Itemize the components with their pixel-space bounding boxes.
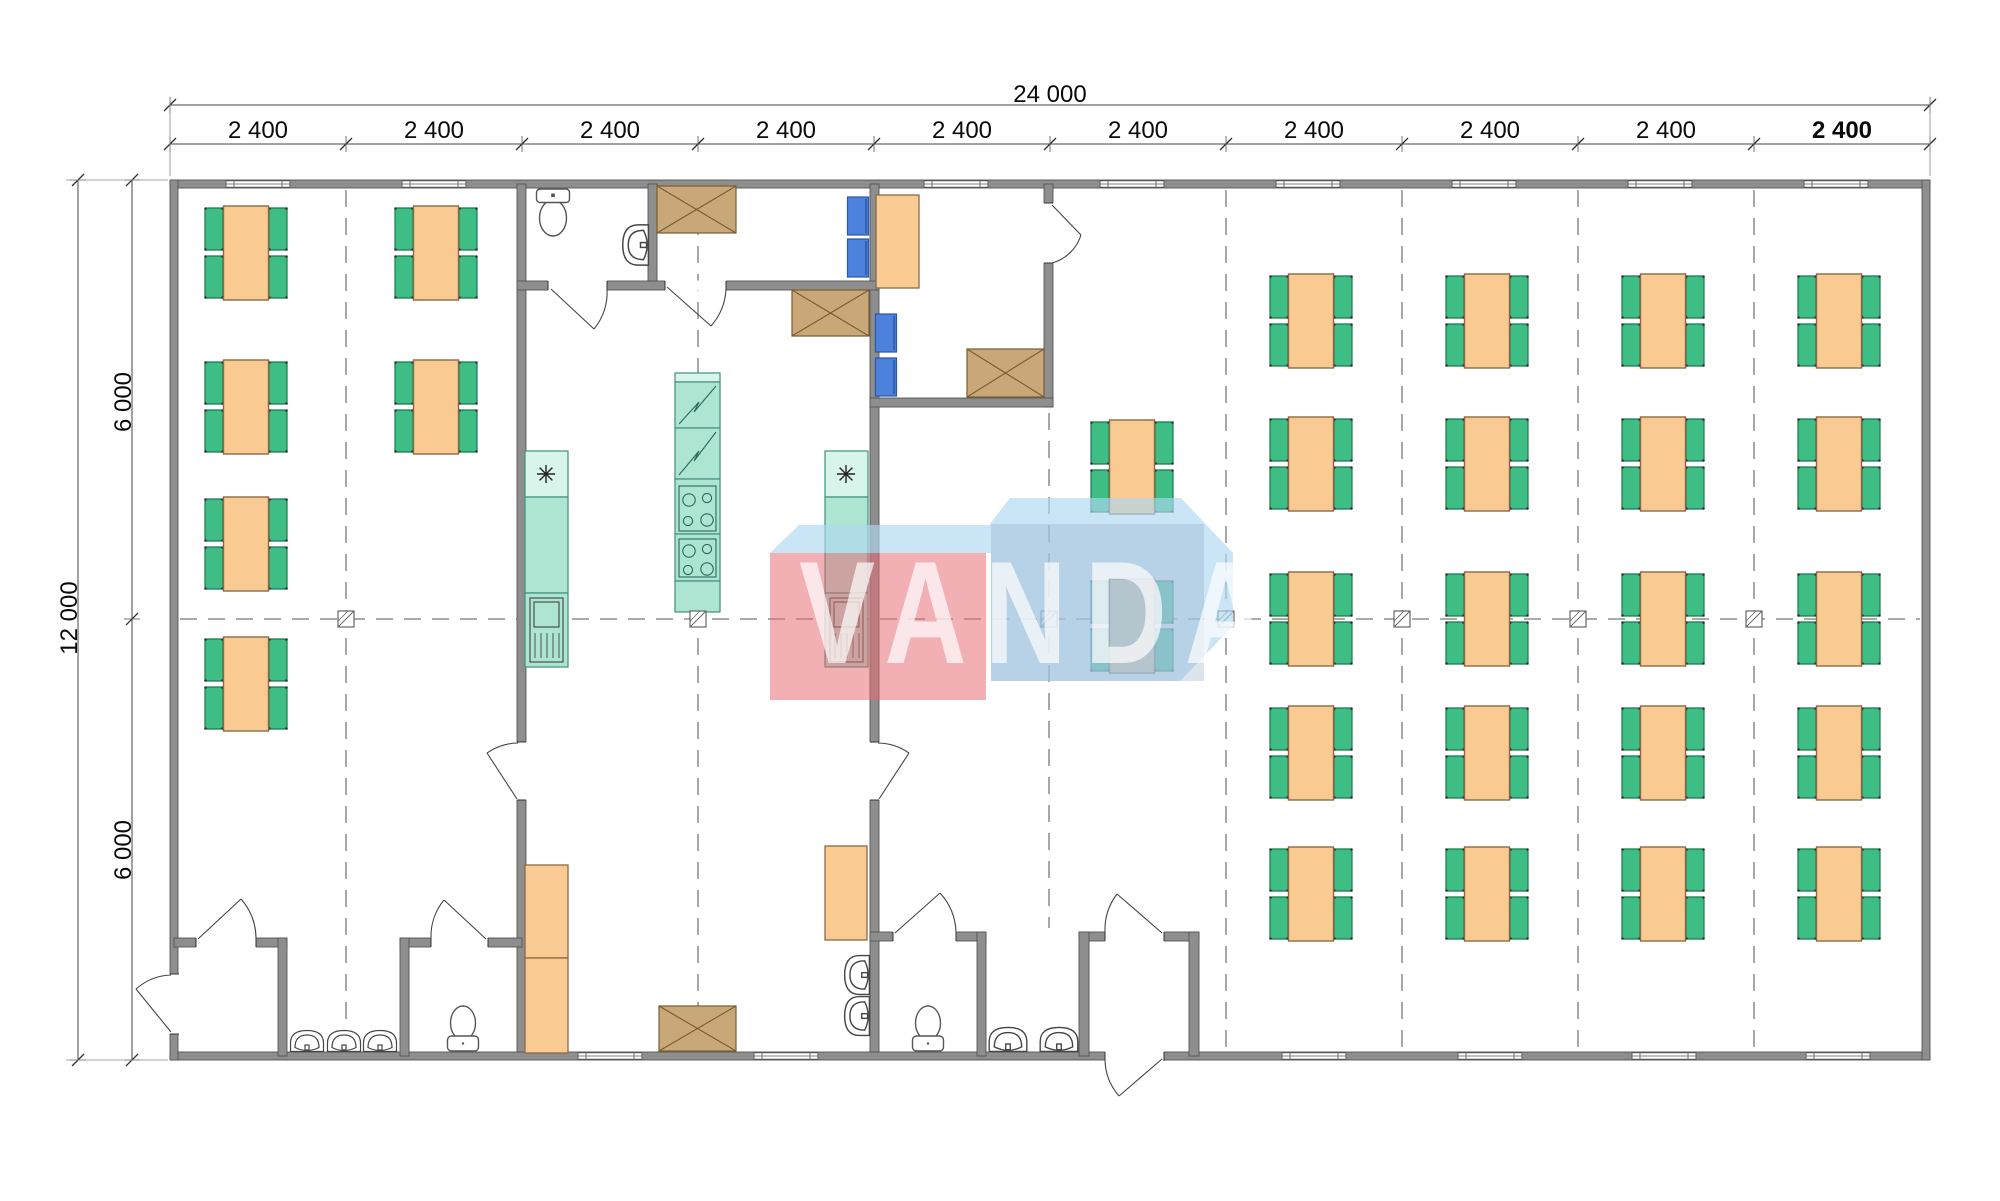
- svg-text:6 000: 6 000: [110, 372, 137, 432]
- svg-text:2 400: 2 400: [404, 117, 464, 144]
- svg-text:12 000: 12 000: [56, 581, 83, 654]
- svg-text:2 400: 2 400: [228, 117, 288, 144]
- svg-text:2 400: 2 400: [580, 117, 640, 144]
- svg-text:2 400: 2 400: [1812, 117, 1872, 144]
- svg-text:6 000: 6 000: [110, 820, 137, 880]
- svg-text:2 400: 2 400: [1460, 117, 1520, 144]
- svg-text:2 400: 2 400: [1636, 117, 1696, 144]
- svg-text:2 400: 2 400: [932, 117, 992, 144]
- svg-text:2 400: 2 400: [756, 117, 816, 144]
- svg-text:24 000: 24 000: [1013, 81, 1086, 108]
- svg-text:2 400: 2 400: [1284, 117, 1344, 144]
- svg-text:2 400: 2 400: [1108, 117, 1168, 144]
